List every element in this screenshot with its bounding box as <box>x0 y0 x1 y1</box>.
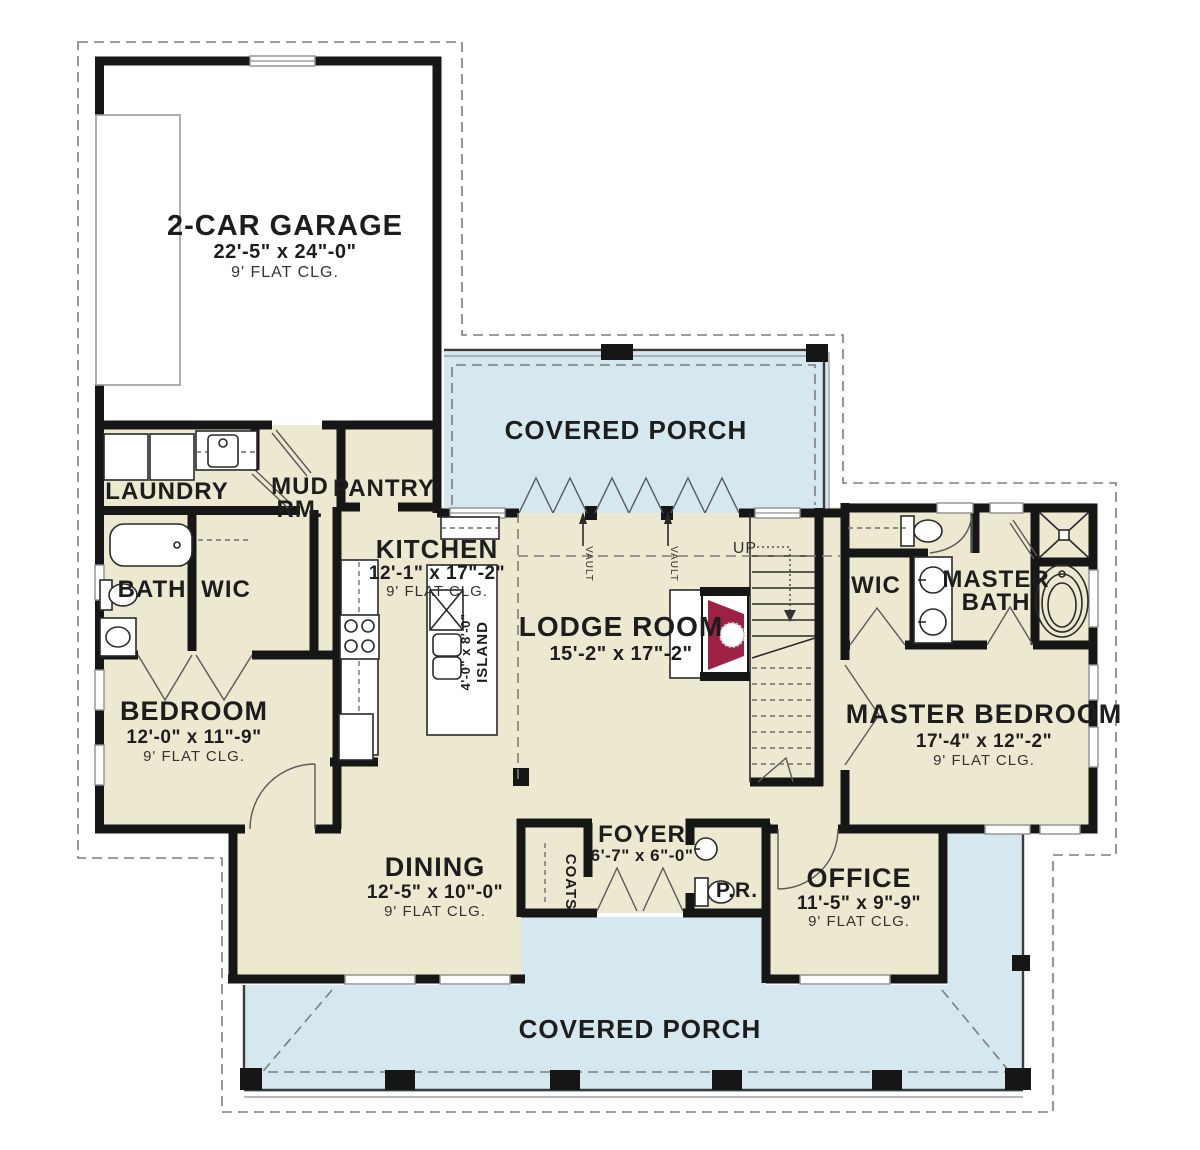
porch-post <box>806 344 828 362</box>
kitchen-clg: 9' FLAT CLG. <box>386 583 488 600</box>
garage-door <box>96 115 180 385</box>
laundry-label: LAUNDRY <box>105 478 228 505</box>
floor-plan-drawing: 2-CAR GARAGE 22'-5" x 24"-0" 9' FLAT CLG… <box>0 0 1200 1150</box>
office-dims: 11'-5" x 9"-9" <box>797 893 921 914</box>
kitchen-label: KITCHEN <box>376 534 499 564</box>
bottom-porch-label: COVERED PORCH <box>519 1014 762 1044</box>
master-toilet-tank <box>901 516 914 546</box>
island-label: ISLAND <box>474 621 491 683</box>
washer <box>104 434 148 480</box>
bedroom-label: BEDROOM <box>120 696 268 726</box>
foyer-dims: 6'-7" x 6"-0" <box>591 846 694 865</box>
garage-label: 2-CAR GARAGE <box>167 210 403 242</box>
porch-post <box>712 1070 742 1090</box>
wic-right-label: WIC <box>851 572 901 599</box>
master-bedroom-clg: 9' FLAT CLG. <box>933 752 1035 769</box>
master-bedroom-dims: 17'-4" x 12"-2" <box>916 731 1052 752</box>
island-dims: 4'-0" x 8'-0" <box>458 613 473 690</box>
dining-dims: 12'-5" x 10"-0" <box>367 882 503 903</box>
vault-label-1: VAULT <box>583 546 594 582</box>
island-sink <box>433 634 461 656</box>
office-clg: 9' FLAT CLG. <box>808 913 910 930</box>
dryer <box>150 434 194 480</box>
kitchen-dims: 12'-1" x 17"-2" <box>369 563 505 584</box>
vault-label-2: VAULT <box>668 546 679 582</box>
garage-dims: 22'-5" x 24"-0" <box>214 241 357 263</box>
bath-label: BATH <box>118 576 187 603</box>
office-label: OFFICE <box>807 863 912 893</box>
porch-post <box>601 344 633 360</box>
master-toilet <box>914 520 942 542</box>
mud-label-2: RM. <box>277 496 324 523</box>
garage-clg: 9' FLAT CLG. <box>231 264 339 281</box>
bedroom-dims: 12'-0" x 11"-9" <box>126 727 261 748</box>
porch-post <box>550 1070 580 1090</box>
lodge-dims: 15'-2" x 17"-2" <box>550 643 693 665</box>
foyer-label: FOYER <box>598 821 686 848</box>
pr-label: P.R. <box>716 879 758 902</box>
dining-clg: 9' FLAT CLG. <box>384 903 486 920</box>
porch-post <box>1012 955 1030 971</box>
bedroom-clg: 9' FLAT CLG. <box>143 748 245 765</box>
floor-plan-page: 2-CAR GARAGE 22'-5" x 24"-0" 9' FLAT CLG… <box>0 0 1200 1150</box>
top-porch-label: COVERED PORCH <box>505 415 748 445</box>
porch-post <box>385 1070 415 1090</box>
wic-left-label: WIC <box>201 576 251 603</box>
porch-post <box>240 1068 262 1090</box>
coats-label: COATS <box>562 854 579 910</box>
pantry-label: PANTRY <box>333 475 435 502</box>
stairs-up-label: UP <box>733 540 757 557</box>
porch-post <box>872 1070 902 1090</box>
lodge-label: LODGE ROOM <box>519 611 723 642</box>
refrigerator <box>339 714 373 760</box>
dining-label: DINING <box>385 852 486 882</box>
pr-toilet-tank <box>695 878 708 906</box>
master-bath-label-2: BATH <box>962 589 1031 616</box>
porch-post <box>1005 1068 1031 1090</box>
master-bedroom-label: MASTER BEDROOM <box>846 699 1123 729</box>
